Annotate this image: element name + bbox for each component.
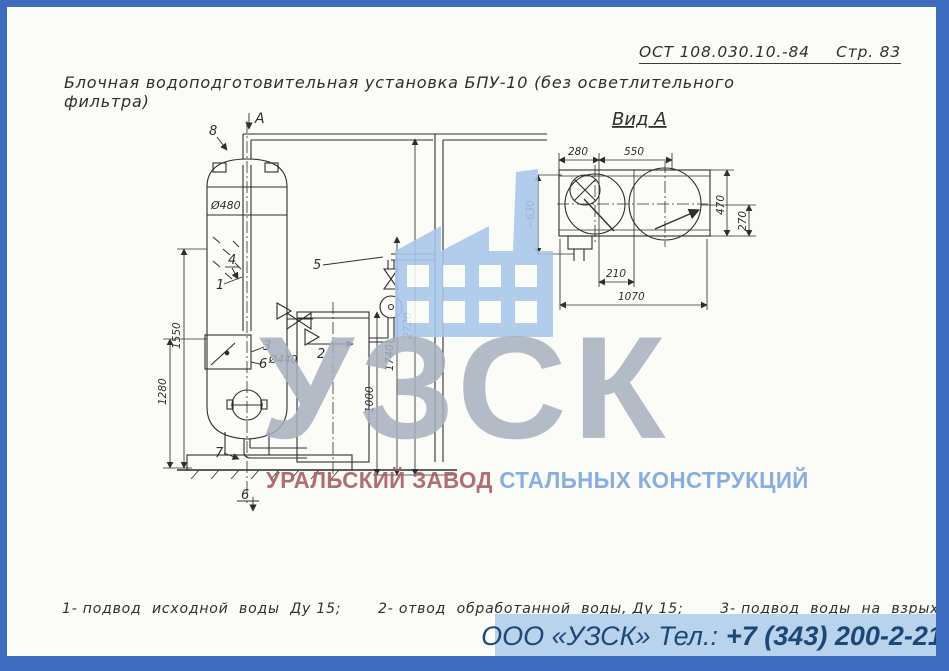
page-header: ОСТ 108.030.10.-84 Стр. 83 [639, 43, 901, 64]
section-label-a: А [254, 111, 265, 127]
callout-7: 7 [215, 446, 224, 461]
dim-550: 550 [624, 146, 644, 158]
callout-8: 8 [209, 124, 217, 139]
callout-4: 4 [228, 253, 236, 268]
pipe-stub [568, 236, 592, 261]
callout-2: 2 [317, 347, 325, 362]
ejector-funnel [277, 303, 291, 319]
dim-280: 280 [568, 146, 588, 158]
dim-270: 270 [737, 211, 749, 231]
dim-1000: 1000 [364, 386, 376, 413]
callout-6b: 6 [241, 488, 249, 503]
callout-1: 1 [216, 278, 224, 293]
view-a-dimensions [538, 153, 756, 310]
phone-number: +7 (343) 200-2-210 [726, 621, 949, 652]
contact-bar: ООО «УЗСК» Тел.: +7 (343) 200-2-210 [495, 614, 944, 658]
skid-outline [559, 170, 710, 236]
ejector-funnel-2 [305, 329, 319, 345]
note-line-2: Ду 15; 4- сброс взрыхляющей воды, Ду 15;… [62, 667, 949, 671]
dim-1550: 1550 [171, 322, 183, 349]
dim-2720: 2720 [402, 312, 414, 339]
dim-d480: Ø480 [210, 199, 241, 212]
dim-1740: 1740 [384, 344, 396, 371]
callout-3: 3 [263, 339, 271, 354]
dim-1280: 1280 [157, 378, 169, 405]
dim-1070: 1070 [618, 291, 645, 303]
dim-210: 210 [606, 268, 626, 280]
standard-number: ОСТ 108.030.10.-84 [639, 43, 810, 61]
dim-470: 470 [715, 195, 727, 215]
company-name: ООО «УЗСК» Тел.: [481, 621, 718, 652]
salt-tank [297, 302, 369, 477]
callout-6: 6 [259, 357, 267, 372]
filter-media-hatch [213, 237, 241, 279]
pump-circle [380, 296, 402, 318]
diagonal-pipe-right [655, 210, 699, 229]
dim-d440: Ø440 [268, 354, 298, 366]
scanned-drawing-page: ОСТ 108.030.10.-84 Стр. 83 Блочная водоп… [0, 0, 949, 671]
valve-vertical [384, 269, 398, 289]
dim-630: ~630 [525, 200, 537, 229]
valve-bowtie [287, 313, 311, 329]
ground-hatch [191, 470, 339, 479]
view-a-title: Вид А [612, 109, 667, 130]
page-number: Стр. 83 [836, 43, 901, 61]
callout-5: 5 [313, 258, 321, 273]
reagent-box [205, 335, 251, 369]
main-drawing: Ø480 Ø440 8 А 4 1 3 6 5 2 7 6 1550 1280 … [147, 107, 557, 519]
overhead-pipe [243, 134, 547, 462]
view-a-drawing: Вид А 280 550 470 270 ~630 210 1070 [512, 103, 762, 328]
